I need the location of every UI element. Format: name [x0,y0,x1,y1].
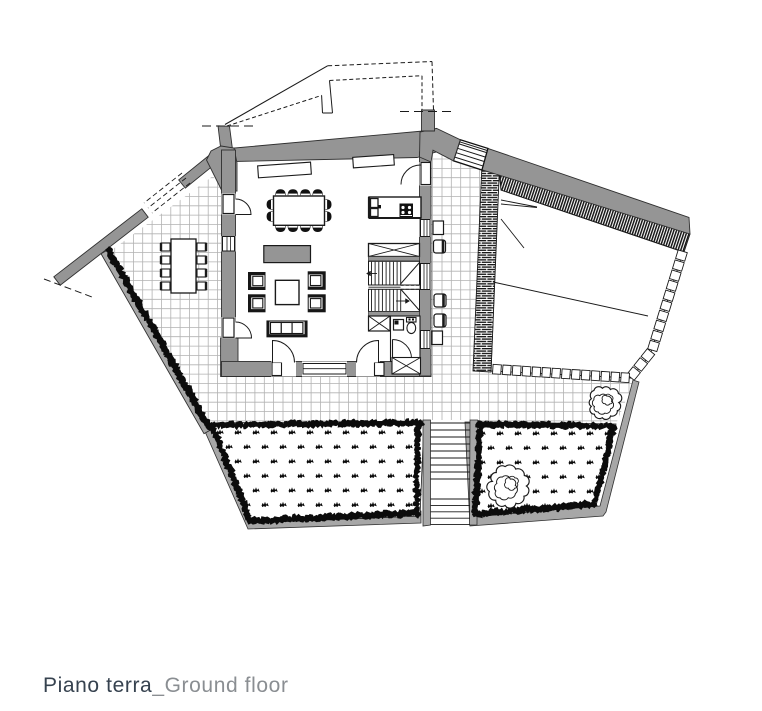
svg-text:Piano terra_Ground floor: Piano terra_Ground floor [43,674,289,697]
